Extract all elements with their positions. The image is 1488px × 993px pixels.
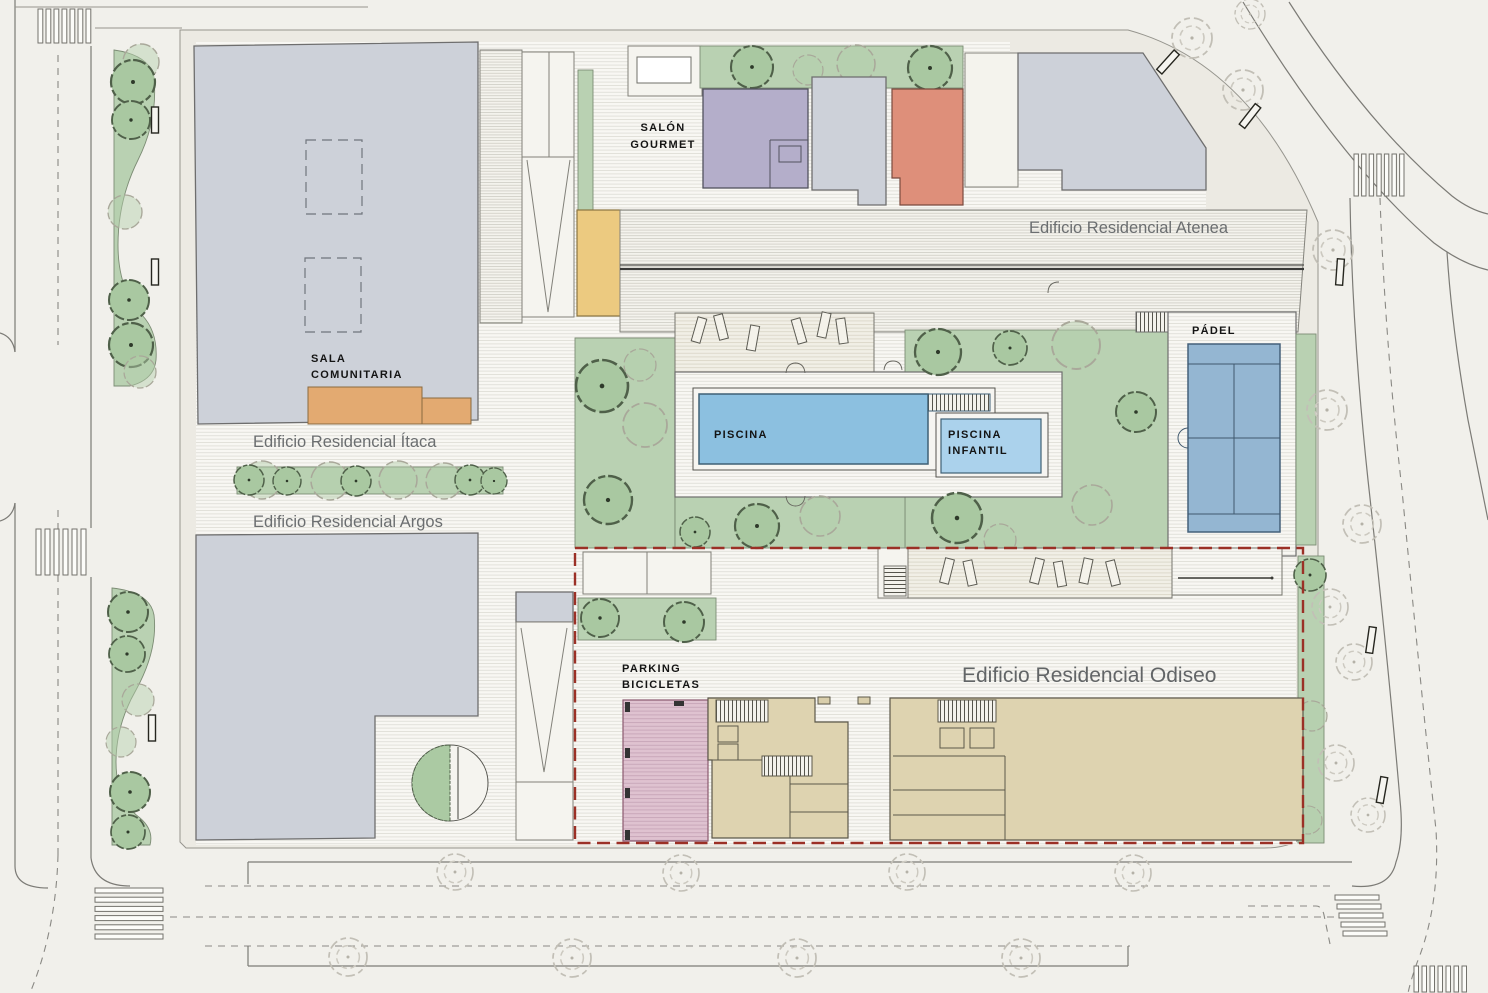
zone-gimnasio bbox=[892, 89, 963, 205]
label-parking-1: PARKING bbox=[622, 663, 681, 675]
zone-piscina-infantil: PISCINA INFANTIL bbox=[936, 413, 1048, 477]
label-sala-comunitaria-2: COMUNITARIA bbox=[311, 369, 403, 381]
label-sala-comunitaria-1: SALA bbox=[311, 353, 346, 365]
building-itaca: SALA COMUNITARIA bbox=[194, 42, 478, 424]
pool-steps bbox=[928, 394, 990, 411]
terrace-box bbox=[628, 46, 702, 96]
crosswalk-bottom-right bbox=[1335, 895, 1387, 936]
pool-garden: PISCINA PISCINA INFANTIL bbox=[575, 312, 1168, 556]
site-plan: SALA COMUNITARIA Edificio Residencial Ít… bbox=[0, 0, 1488, 993]
label-odiseo: Edificio Residencial Odiseo bbox=[962, 664, 1216, 687]
odiseo-unit-east bbox=[890, 698, 1303, 840]
label-piscina-infantil-2: INFANTIL bbox=[948, 445, 1008, 457]
paving-strip-2 bbox=[965, 53, 1018, 187]
ramp-north bbox=[522, 52, 574, 317]
planter-vertical bbox=[578, 70, 593, 210]
label-argos: Edificio Residencial Argos bbox=[253, 513, 443, 531]
site-plan-canvas: SALA COMUNITARIA Edificio Residencial Ít… bbox=[0, 0, 1488, 993]
building-argos bbox=[196, 533, 488, 840]
planter-strip-top-left bbox=[108, 44, 159, 388]
sun-deck-north bbox=[675, 312, 874, 372]
sala-comunitaria-block-small bbox=[422, 398, 471, 424]
crosswalk-top-right bbox=[1354, 154, 1404, 196]
zone-salon-gourmet bbox=[703, 89, 808, 188]
label-piscina-infantil-1: PISCINA bbox=[948, 429, 1002, 441]
crosswalk-bottom-edge bbox=[1414, 966, 1467, 992]
label-padel: PÁDEL bbox=[1192, 324, 1236, 337]
zone-parking-bicicletas bbox=[623, 700, 708, 841]
label-parking-2: BICICLETAS bbox=[622, 679, 700, 691]
crosswalk-mid-left bbox=[36, 529, 86, 575]
label-piscina: PISCINA bbox=[714, 429, 768, 441]
stair-core-south bbox=[516, 592, 573, 840]
label-salon-gourmet-1: SALÓN bbox=[641, 121, 686, 134]
label-salon-gourmet-2: GOURMET bbox=[630, 139, 695, 151]
building-core-north bbox=[812, 77, 886, 205]
sala-comunitaria-block bbox=[308, 387, 422, 424]
zone-juegos-infantiles bbox=[577, 210, 621, 316]
label-itaca: Edificio Residencial Ítaca bbox=[253, 432, 437, 451]
planter-strip-bottom-left bbox=[106, 588, 156, 849]
padel-stairs bbox=[1136, 312, 1168, 332]
tree-row-median bbox=[234, 461, 507, 500]
label-atenea: Edificio Residencial Atenea bbox=[1029, 219, 1229, 237]
crosswalk-bottom-left bbox=[95, 888, 163, 939]
planter-odiseo bbox=[578, 598, 716, 642]
paving-strip bbox=[480, 50, 522, 323]
crosswalk-top-left bbox=[38, 9, 91, 43]
